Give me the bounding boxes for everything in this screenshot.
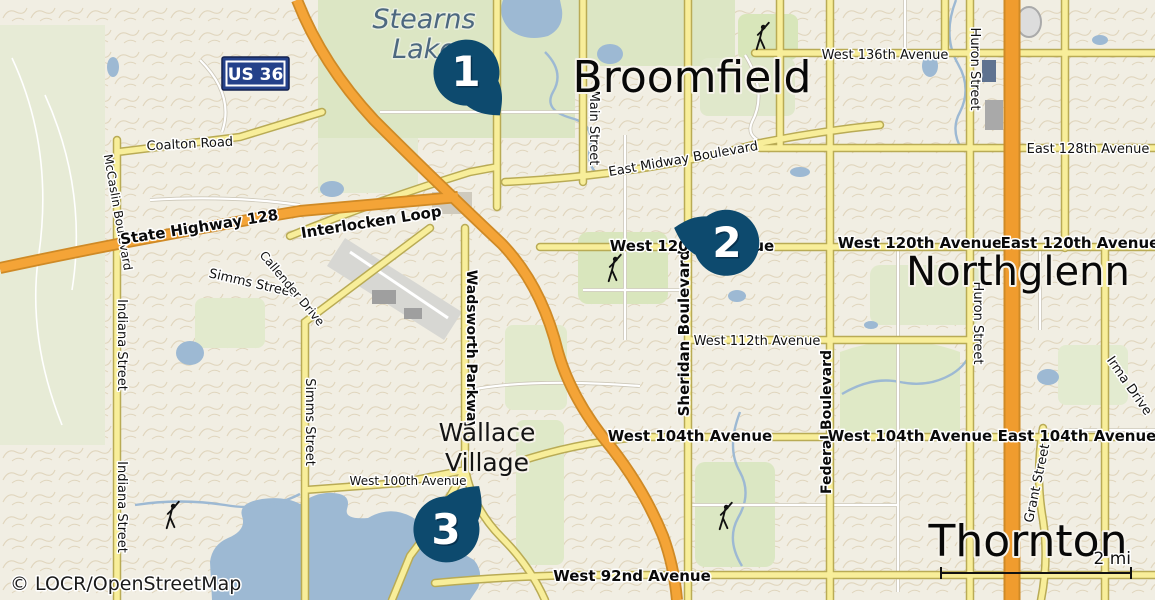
street-label-w92: West 92nd Avenue [553, 567, 711, 585]
street-label-e104: East 104th Avenue [998, 427, 1155, 445]
street-label-federal: Federal Boulevard [819, 350, 835, 494]
street-label-w136: West 136th Avenue [822, 48, 949, 63]
map-svg[interactable]: US 36 Coalton Road McCaslin Boulevard St… [0, 0, 1155, 600]
street-label-indiana-upper: Indiana Street [114, 299, 129, 391]
marker-2-number: 2 [712, 218, 741, 267]
street-label-wadsworth: Wadsworth Parkway [463, 270, 479, 430]
wallace-village-label-line2: Village [445, 448, 529, 477]
street-label-indiana-lower: Indiana Street [114, 461, 129, 553]
street-label-sheridan: Sheridan Boulevard [675, 250, 693, 417]
city-label-broomfield: Broomfield [573, 52, 812, 103]
marker-1-number: 1 [451, 47, 480, 96]
attribution: © LOCR/OpenStreetMap [10, 573, 241, 595]
us36-badge-label: US 36 [228, 65, 284, 85]
stearns-lake-label-line1: Stearns [372, 4, 475, 35]
marker-3-number: 3 [431, 505, 460, 554]
street-label-w112: West 112th Avenue [694, 334, 821, 349]
us36-route-badge: US 36 [222, 57, 289, 90]
wallace-village-label-line1: Wallace [439, 418, 536, 447]
map-canvas[interactable]: US 36 Coalton Road McCaslin Boulevard St… [0, 0, 1155, 600]
street-label-w104-left: West 104th Avenue [608, 427, 772, 445]
street-label-w104-right: West 104th Avenue [828, 427, 992, 445]
city-label-northglenn: Northglenn [906, 249, 1130, 295]
scale-label: 2 mi [1093, 549, 1131, 569]
street-label-huron-upper: Huron Street [967, 28, 982, 111]
street-label-e128: East 128th Avenue [1027, 142, 1150, 157]
street-label-simms-lower: Simms Street [302, 378, 317, 466]
